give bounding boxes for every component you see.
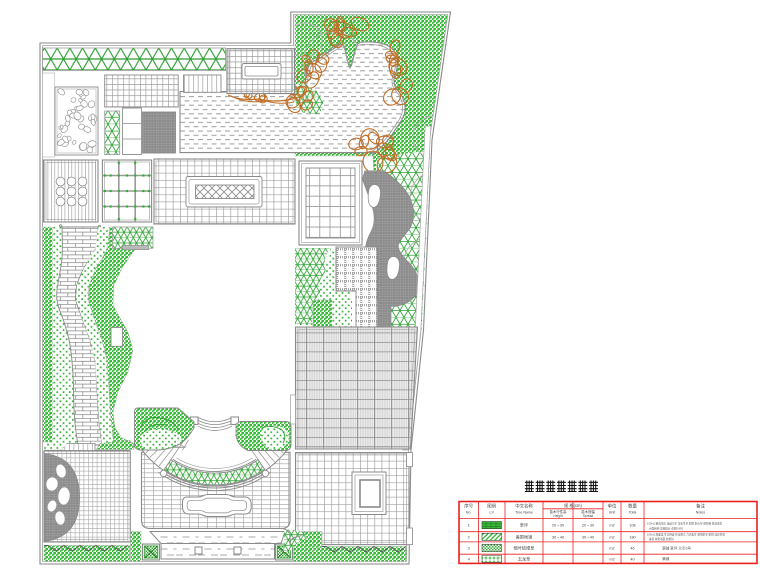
svg-text:满铺 草坪 兰引3号: 满铺 草坪 兰引3号 bbox=[662, 546, 692, 551]
svg-text:草坪: 草坪 bbox=[520, 522, 528, 529]
svg-text:m2: m2 bbox=[609, 547, 614, 551]
svg-text:Notes: Notes bbox=[696, 511, 706, 515]
svg-text:LX: LX bbox=[489, 511, 494, 515]
svg-text:规 格(cm): 规 格(cm) bbox=[564, 502, 583, 509]
svg-text:46: 46 bbox=[630, 547, 634, 551]
svg-text:30→40: 30→40 bbox=[582, 535, 594, 539]
svg-text:备注: 备注 bbox=[696, 503, 705, 510]
svg-text:Height: Height bbox=[553, 514, 562, 518]
svg-text:20→30: 20→30 bbox=[552, 524, 564, 528]
svg-text:细叶结缕草: 细叶结缕草 bbox=[514, 545, 535, 552]
svg-text:Tree Name: Tree Name bbox=[515, 511, 533, 515]
svg-text:满铺: 满铺 bbox=[662, 556, 670, 561]
svg-text:30→40: 30→40 bbox=[552, 535, 564, 539]
svg-text:Spread: Spread bbox=[583, 514, 594, 518]
svg-text:40: 40 bbox=[630, 557, 634, 561]
svg-text:序号: 序号 bbox=[464, 503, 473, 510]
svg-text:大面积种 见缝插针 花期5-9月: 大面积种 见缝插针 花期5-9月 bbox=[649, 527, 683, 531]
svg-text:100m2 爬藤类 生长快速 性喜阳光 六月发芽 耐寒耐旱: 100m2 爬藤类 生长快速 性喜阳光 六月发芽 耐寒耐旱 耐阴 适应性强 bbox=[647, 533, 725, 537]
svg-text:m2: m2 bbox=[609, 524, 614, 528]
svg-text:单位: 单位 bbox=[608, 503, 617, 510]
svg-text:180: 180 bbox=[629, 535, 635, 539]
svg-text:玉龙草: 玉龙草 bbox=[518, 555, 531, 562]
svg-text:垂直 绿化墙面 效果好: 垂直 绿化墙面 效果好 bbox=[649, 537, 674, 541]
svg-text:No.: No. bbox=[466, 511, 472, 515]
svg-text:中文名称: 中文名称 bbox=[515, 503, 533, 510]
svg-text:数量: 数量 bbox=[628, 503, 637, 510]
svg-text:图例: 图例 bbox=[487, 503, 496, 510]
svg-text:100m2 精选草皮 铺设为主 多年生草 耐寒 耐大旱 耐: 100m2 精选草皮 铺设为主 多年生草 耐寒 耐大旱 耐贫瘠 抗病虫害 bbox=[647, 522, 723, 526]
svg-text:20→30: 20→30 bbox=[582, 524, 594, 528]
svg-text:m2: m2 bbox=[609, 557, 614, 561]
svg-text:Unit: Unit bbox=[609, 511, 615, 515]
svg-text:美国地锦: 美国地锦 bbox=[516, 533, 533, 540]
svg-text:108: 108 bbox=[629, 524, 635, 528]
svg-text:Total: Total bbox=[629, 511, 637, 515]
svg-text:m2: m2 bbox=[609, 535, 614, 539]
